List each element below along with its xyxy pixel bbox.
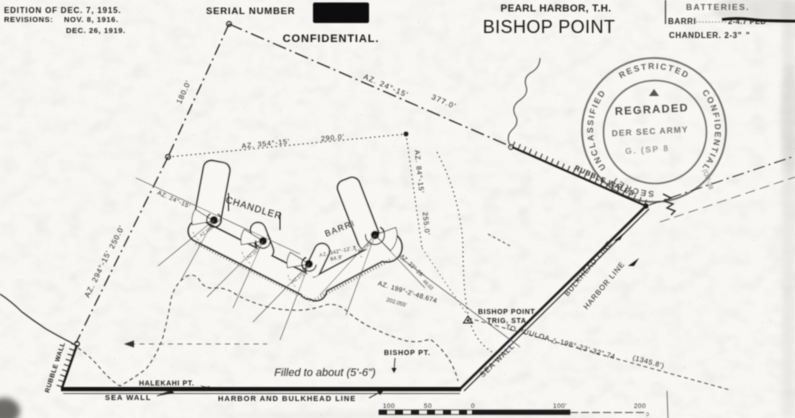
svg-text:DEC. 26, 1919.: DEC. 26, 1919. <box>66 26 126 35</box>
svg-text:100: 100 <box>383 403 395 410</box>
svg-text:CONFIDENTIAL.: CONFIDENTIAL. <box>283 33 380 45</box>
svg-text:BISHOP PT.: BISHOP PT. <box>384 350 431 357</box>
svg-text:SERIAL NUMBER: SERIAL NUMBER <box>206 6 295 17</box>
svg-text:100': 100' <box>553 403 567 410</box>
svg-text:REVISIONS:: REVISIONS: <box>4 15 53 24</box>
svg-text:CHANDLER. 2-3" ": CHANDLER. 2-3" " <box>669 31 750 40</box>
svg-text:HALEKAHI PT.: HALEKAHI PT. <box>139 381 194 388</box>
svg-text:HARBOR AND BULKHEAD LINE: HARBOR AND BULKHEAD LINE <box>218 394 356 403</box>
svg-text:BISHOP POINT: BISHOP POINT <box>483 17 616 37</box>
svg-text:ɔ: ɔ <box>646 412 649 418</box>
svg-text:NOV. 8, 1916.: NOV. 8, 1916. <box>64 15 119 24</box>
svg-text:SEA WALL: SEA WALL <box>105 393 151 402</box>
svg-text:Filled to about (5'-6"): Filled to about (5'-6") <box>274 367 376 379</box>
svg-text:BATTERIES.: BATTERIES. <box>686 2 750 12</box>
svg-text:BISHOP POINT: BISHOP POINT <box>478 309 535 316</box>
svg-text:PEARL HARBOR, T.H.: PEARL HARBOR, T.H. <box>501 4 612 15</box>
svg-text:EDITION OF DEC. 7, 1915.: EDITION OF DEC. 7, 1915. <box>4 6 121 15</box>
svg-text:50: 50 <box>424 403 432 410</box>
svg-text:0: 0 <box>471 403 475 410</box>
svg-text:BARRI: BARRI <box>668 17 696 26</box>
svg-text:200: 200 <box>634 403 646 410</box>
